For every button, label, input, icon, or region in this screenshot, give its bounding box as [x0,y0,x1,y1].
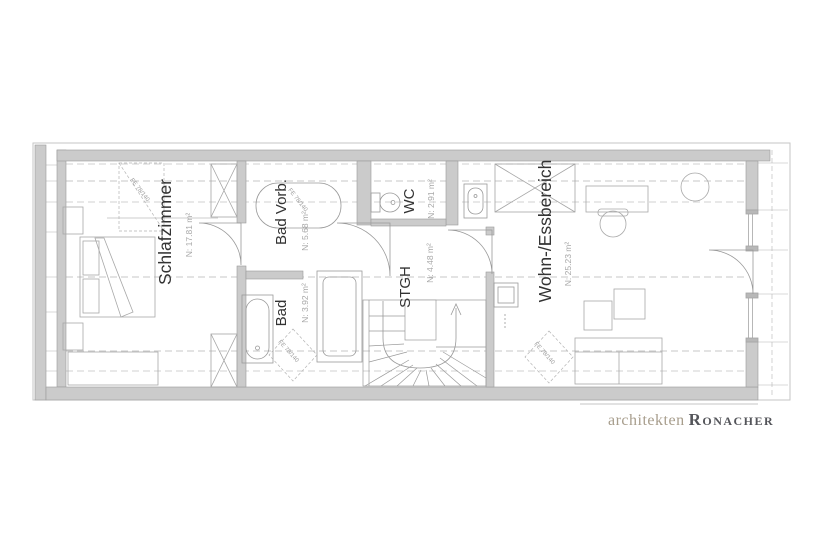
roof-window-label: FE 78/140 [277,339,300,364]
floor-plan-drawing: FE 78/140 FE 78/140 FE 78/140 FE 78/140 … [0,0,820,560]
roof-window-label: FE 78/140 [128,178,150,204]
wall-schlafzimmer-top [237,161,246,223]
party-wall-inner [57,150,66,387]
room-area-wc: N: 2.91 m² [426,179,436,219]
bathtub-bad [242,295,273,363]
wall-wc-bottom [371,219,446,226]
logo-studio-text: architekten [608,412,685,429]
architect-logo: architektenRonacher [608,410,808,430]
room-area-wohn-essbereich: N: 25.23 m² [563,242,573,287]
right-wall-top [746,161,758,210]
toilet [371,193,400,212]
room-area-schlafzimmer: N: 17.81 m² [184,213,194,258]
washbasin [464,184,487,218]
room-area-bad-vorb: N: 5.68 m² [300,211,310,251]
wardrobe-schlafzimmer-top [211,164,237,217]
right-wall-bottom [746,342,758,387]
room-label-stgh: STGH [397,266,414,308]
desk-chair [598,209,628,237]
door-badvorb-stgh [337,223,390,276]
room-label-wohn-essbereich: Wohn-/Essbereich [535,160,555,303]
bottom-exterior-wall [46,387,758,400]
wall-wc-right [446,161,458,225]
room-label-wc: WC [401,188,418,213]
sideboard [68,352,158,385]
roof-windows [119,163,573,383]
room-label-bad: Bad [273,300,290,327]
shower [317,271,362,362]
sofa [575,338,662,384]
top-exterior-wall [57,150,770,161]
door-entry [709,250,753,294]
right-wall-glazing [746,210,758,342]
party-wall-outer [35,145,46,400]
desk [586,186,648,212]
wall-stair-post [486,227,494,235]
side-table-1 [584,301,612,330]
shaft-box [494,283,518,328]
wall-stair-right [486,272,494,387]
roof-window-label: FE 78/140 [533,341,556,366]
room-area-stgh: N: 4.48 m² [425,243,435,283]
dining-table [681,173,709,201]
wall-wc-left [357,161,371,225]
room-label-schlafzimmer: Schlafzimmer [155,179,175,285]
floor-plan-page: FE 78/140 FE 78/140 FE 78/140 FE 78/140 … [0,0,820,560]
stairs [363,300,486,386]
logo-name-text: Ronacher [689,410,775,429]
room-area-bad: N: 3.92 m² [300,283,310,323]
door-stgh-wohn [448,230,492,274]
bed [63,207,155,350]
wall-schlafzimmer-bottom [237,266,246,387]
wardrobe-schlafzimmer-bottom [211,334,237,387]
wall-bad-top [246,271,303,279]
room-label-bad-vorb: Bad Vorb. [273,179,290,245]
door-schlafzimmer [199,223,241,265]
side-table-2 [614,289,645,319]
